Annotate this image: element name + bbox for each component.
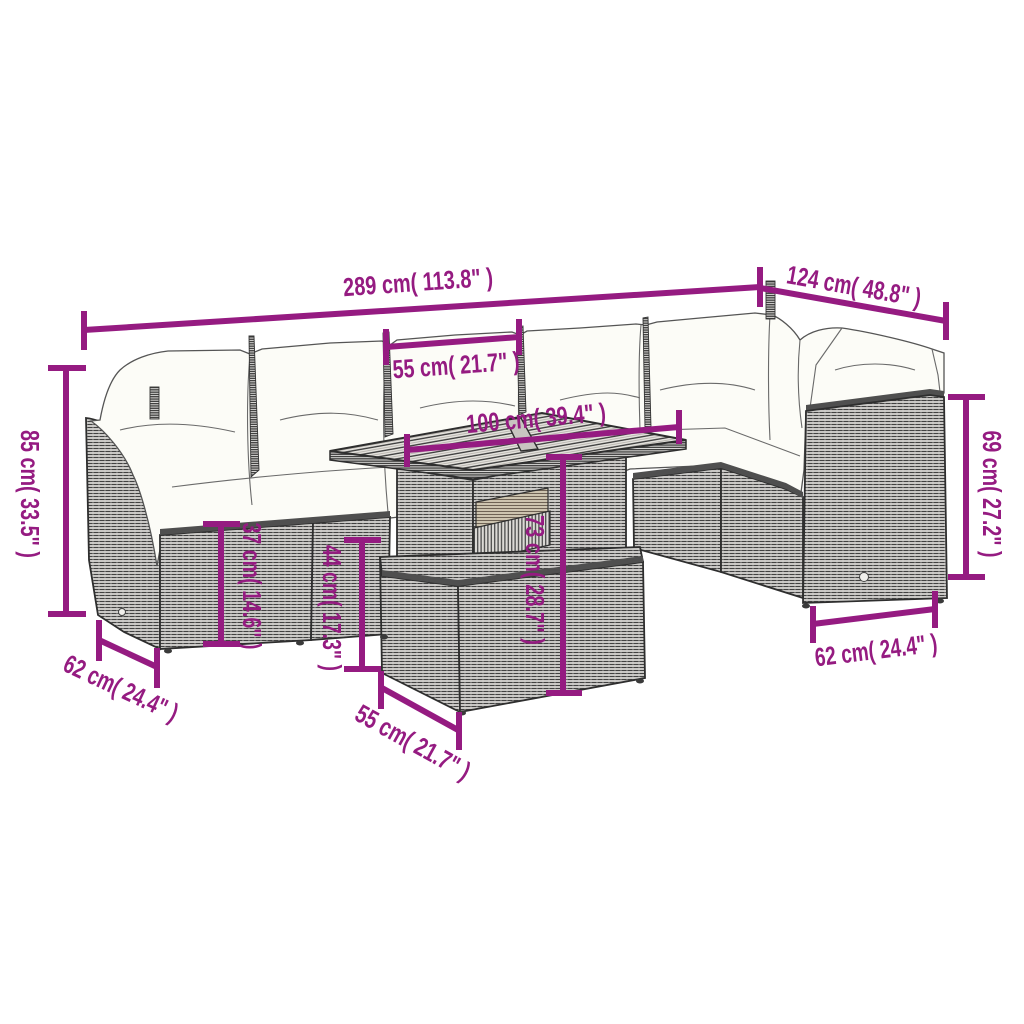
- svg-text:85 cm( 33.5" ): 85 cm( 33.5" ): [15, 430, 45, 558]
- svg-text:44 cm( 17.3" ): 44 cm( 17.3" ): [317, 545, 347, 671]
- svg-text:37 cm( 14.6" ): 37 cm( 14.6" ): [237, 523, 267, 650]
- svg-text:69 cm( 27.2" ): 69 cm( 27.2" ): [977, 431, 1007, 558]
- svg-text:73 cm( 28.7" ): 73 cm( 28.7" ): [520, 515, 550, 645]
